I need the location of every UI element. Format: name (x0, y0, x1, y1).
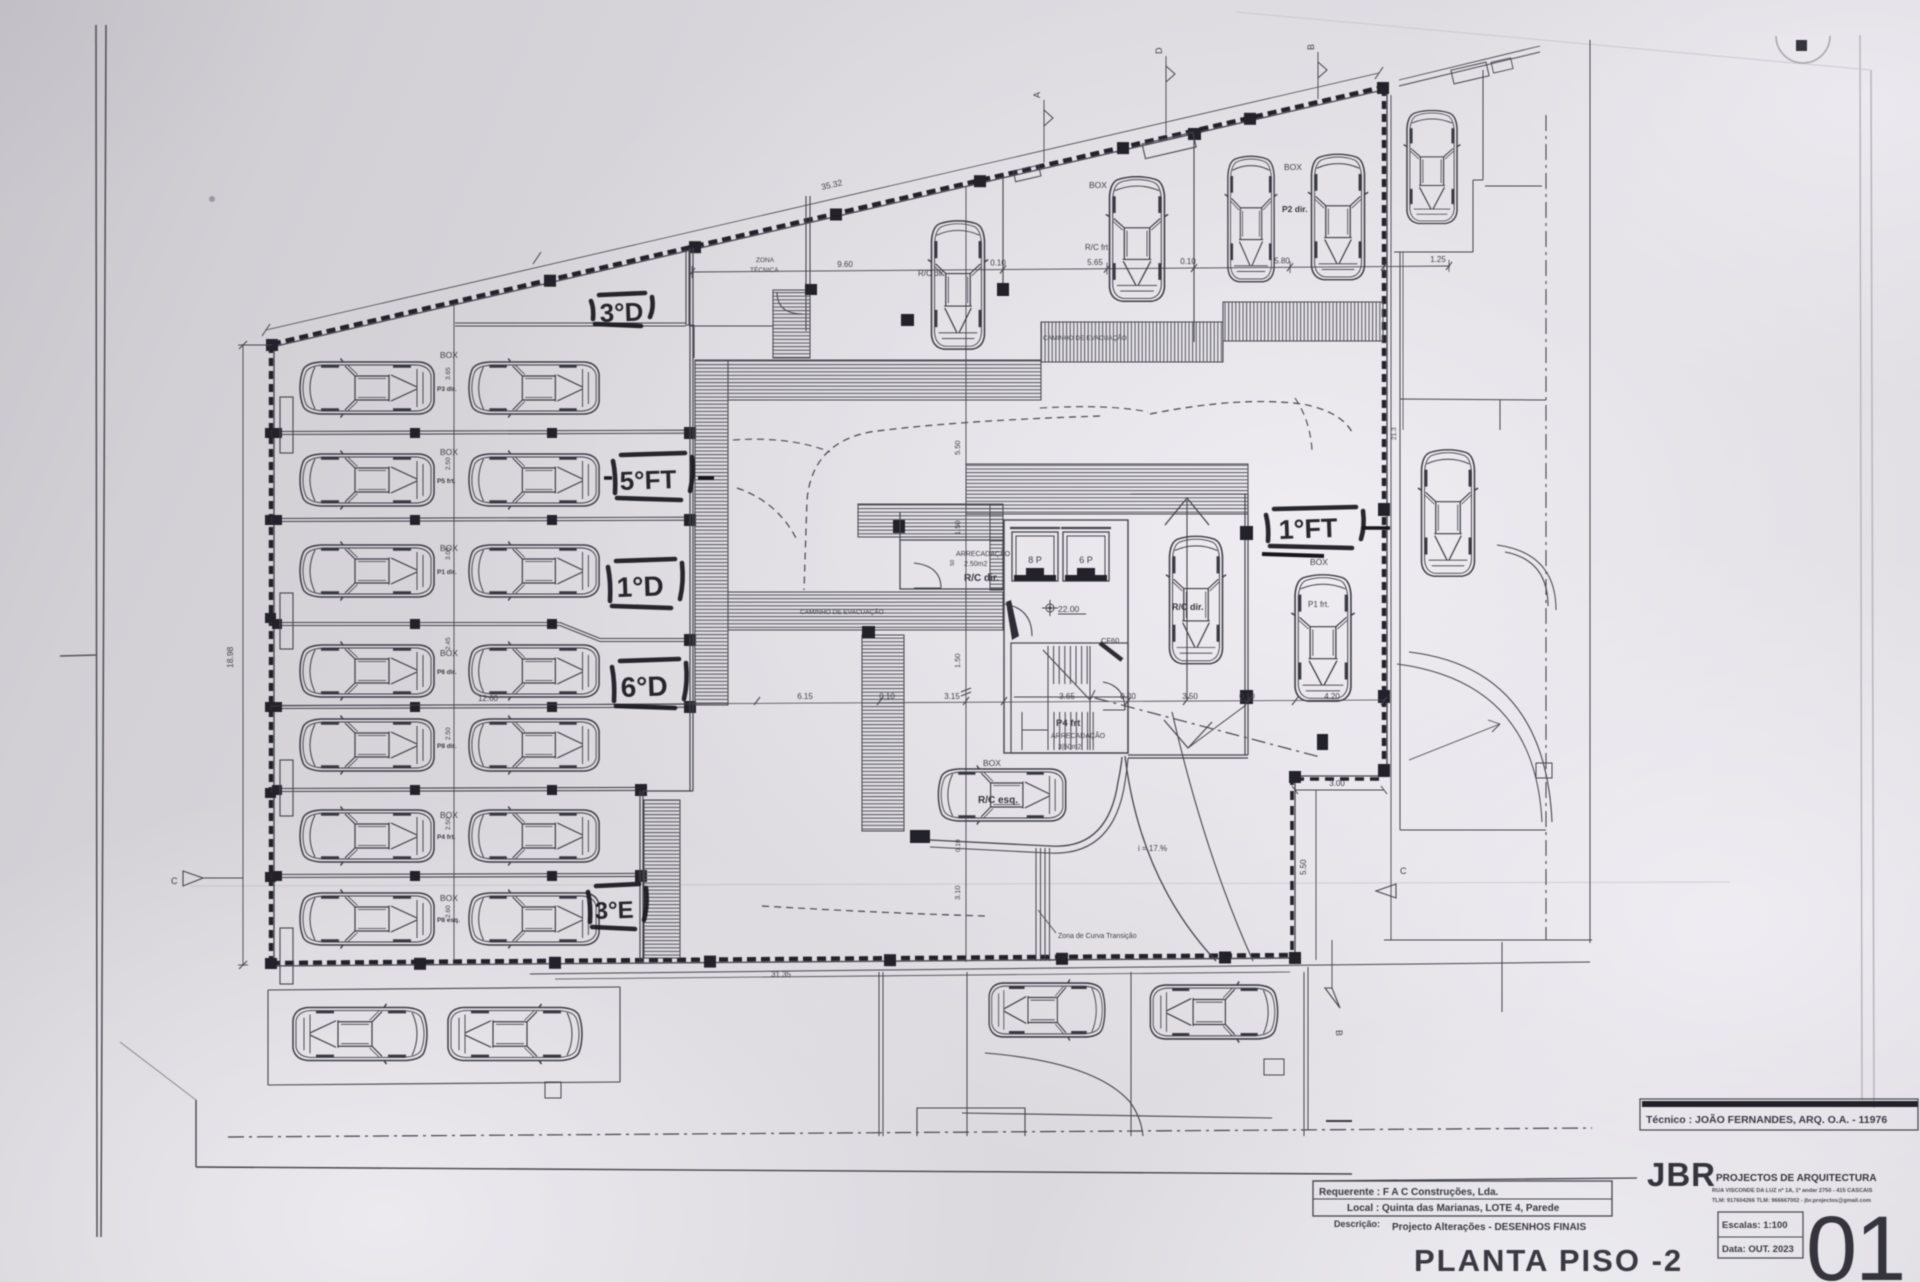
svg-text:TÉCNICA: TÉCNICA (750, 265, 779, 274)
svg-text:P8 esq.: P8 esq. (437, 917, 460, 924)
svg-text:P6 dir.: P6 dir. (437, 669, 457, 676)
svg-text:0.10: 0.10 (1239, 692, 1255, 701)
svg-text:3.65: 3.65 (1059, 692, 1075, 701)
svg-text:JBR: JBR (1647, 1156, 1716, 1193)
svg-text:P8 dir.: P8 dir. (437, 743, 457, 750)
svg-text:5°FT: 5°FT (619, 464, 677, 496)
svg-text:5.65: 5.65 (1087, 258, 1103, 267)
svg-text:18.98: 18.98 (225, 646, 235, 668)
svg-text:R/C dir.: R/C dir. (964, 573, 999, 584)
svg-text:BOX: BOX (1284, 162, 1302, 172)
svg-text:BOX: BOX (440, 893, 458, 903)
svg-text:RUA VISCONDE DA LUZ nº 1A, 1º: RUA VISCONDE DA LUZ nº 1A, 1º andar 2750… (1712, 1188, 1873, 1194)
svg-text:3.65: 3.65 (445, 367, 452, 380)
svg-text:C: C (171, 876, 178, 886)
svg-text:5.50: 5.50 (953, 440, 962, 455)
svg-text:4.20: 4.20 (1324, 692, 1340, 701)
svg-text:P1 dir.: P1 dir. (437, 569, 457, 576)
svg-text:D: D (1154, 47, 1164, 54)
svg-text:Descrição:: Descrição: (1334, 1219, 1380, 1229)
svg-text:2.50m2: 2.50m2 (964, 561, 987, 568)
svg-text:3.10: 3.10 (953, 885, 962, 900)
svg-text:0.10: 0.10 (879, 692, 895, 701)
svg-text:PROJECTOS DE ARQUITECTURA: PROJECTOS DE ARQUITECTURA (1716, 1173, 1877, 1184)
svg-text:5.50: 5.50 (1299, 859, 1308, 875)
svg-text:6.15: 6.15 (797, 692, 813, 701)
svg-text:BOX: BOX (983, 758, 1001, 768)
svg-text:3.50: 3.50 (1182, 692, 1198, 701)
svg-text:0.10: 0.10 (990, 259, 1006, 268)
svg-text:P4 frt.: P4 frt. (437, 834, 456, 841)
svg-text:P5 frt.: P5 frt. (437, 478, 456, 485)
svg-text:1°FT: 1°FT (1278, 513, 1338, 545)
svg-text:3.15: 3.15 (944, 692, 960, 701)
svg-text:6 P: 6 P (1079, 555, 1093, 565)
svg-text:ARRECADAÇÃO: ARRECADAÇÃO (1051, 731, 1106, 740)
svg-text:3|50m2: 3|50m2 (1058, 744, 1081, 751)
svg-text:2.50: 2.50 (445, 457, 452, 470)
svg-text:3°D: 3°D (599, 296, 644, 328)
svg-text:BOX: BOX (440, 543, 458, 553)
svg-text:Escalas: 1:100: Escalas: 1:100 (1722, 1220, 1788, 1231)
svg-text:01: 01 (1806, 1198, 1904, 1282)
svg-text:Zona de Curva Transição: Zona de Curva Transição (1058, 933, 1137, 940)
svg-text:BOX: BOX (440, 810, 458, 820)
svg-text:35.32: 35.32 (820, 177, 843, 192)
svg-text:0.10: 0.10 (1180, 257, 1196, 266)
svg-text:i = 17.%: i = 17.% (1138, 844, 1167, 853)
svg-text:P4 frt: P4 frt (1056, 718, 1081, 729)
svg-text:Data: OUT. 2023: Data: OUT. 2023 (1722, 1244, 1794, 1255)
svg-text:A: A (1032, 92, 1042, 98)
svg-text:BOX: BOX (1089, 180, 1107, 190)
svg-text:P3 dir.: P3 dir. (437, 386, 457, 393)
svg-text:B: B (1334, 1030, 1344, 1036)
svg-text:B: B (1306, 44, 1316, 50)
svg-text:50: 50 (950, 560, 956, 566)
svg-text:0.20: 0.20 (1120, 692, 1136, 701)
svg-text:R/C dir.: R/C dir. (918, 269, 945, 278)
svg-text:1.25: 1.25 (1430, 255, 1446, 264)
svg-text:BOX: BOX (440, 447, 458, 457)
svg-text:Projecto Alterações - DESENHOS: Projecto Alterações - DESENHOS FINAIS (1392, 1222, 1586, 1233)
svg-text:22.00: 22.00 (1058, 604, 1080, 614)
svg-text:R/C dir.: R/C dir. (1172, 602, 1204, 612)
svg-text:P1 frt.: P1 frt. (1308, 600, 1329, 609)
svg-text:1.50: 1.50 (953, 653, 962, 668)
svg-text:6°D: 6°D (620, 670, 668, 703)
svg-text:Requerente : F A C Construçõe: Requerente : F A C Construções, Lda. (1319, 1187, 1499, 1198)
svg-text:P2 dir.: P2 dir. (1282, 204, 1308, 214)
svg-text:BOX: BOX (440, 648, 458, 658)
svg-text:8 P: 8 P (1028, 555, 1042, 565)
svg-text:2.50: 2.50 (445, 727, 452, 740)
svg-text:0.10: 0.10 (955, 839, 962, 852)
svg-text:ZONA: ZONA (756, 257, 775, 264)
svg-text:9.60: 9.60 (837, 260, 853, 269)
svg-text:BOX: BOX (1310, 557, 1328, 567)
svg-text:Técnico : JOÃO FERNANDES, ARQ.: Técnico : JOÃO FERNANDES, ARQ. O.A. - 11… (1646, 1113, 1887, 1126)
svg-text:R/C frt.: R/C frt. (1085, 243, 1110, 252)
svg-text:3°E: 3°E (594, 897, 634, 925)
svg-text:1°D: 1°D (616, 570, 664, 603)
svg-text:PLANTA PISO -2: PLANTA PISO -2 (1414, 1243, 1683, 1278)
svg-text:1.50: 1.50 (953, 520, 962, 535)
svg-text:CAMINHO DE EVACUAÇÃO: CAMINHO DE EVACUAÇÃO (800, 607, 884, 616)
svg-text:21.3: 21.3 (1391, 427, 1398, 440)
svg-text:CF60: CF60 (1101, 636, 1119, 645)
svg-text:C: C (1400, 866, 1407, 876)
svg-text:CAMINHO DE EVACUAÇÃO: CAMINHO DE EVACUAÇÃO (1043, 333, 1127, 342)
svg-text:BOX: BOX (440, 350, 458, 360)
svg-text:Local : Quinta das Marianas, L: Local : Quinta das Marianas, LOTE 4, Par… (1347, 1203, 1560, 1214)
svg-text:3.00: 3.00 (1329, 779, 1345, 788)
svg-text:5.80: 5.80 (1274, 256, 1290, 265)
svg-text:ARRECADAÇÃO: ARRECADAÇÃO (956, 549, 1011, 558)
